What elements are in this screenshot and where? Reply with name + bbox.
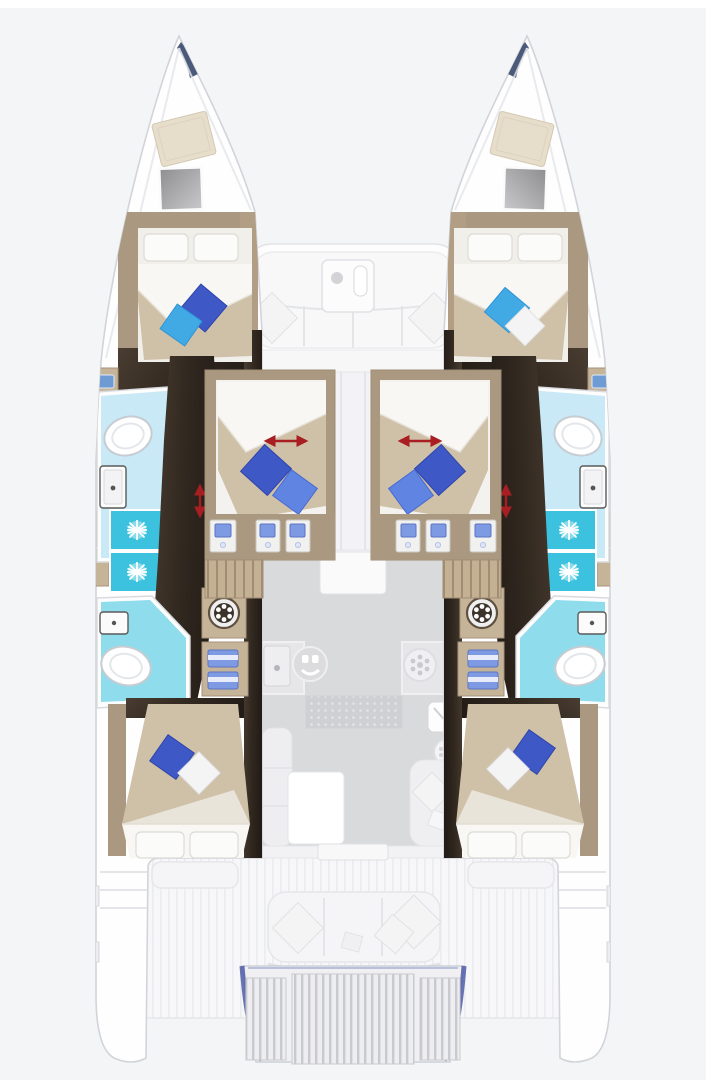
aft-bench bbox=[268, 892, 441, 975]
grating-panel bbox=[420, 978, 460, 1060]
forward-cockpit bbox=[244, 244, 462, 356]
grating-panel bbox=[292, 974, 414, 1064]
top-white-strip bbox=[0, 0, 706, 8]
center-column bbox=[333, 372, 373, 550]
galley-hob bbox=[293, 647, 327, 681]
side-bench-starboard bbox=[468, 862, 554, 888]
foredeck-band bbox=[246, 350, 460, 372]
grating-panel bbox=[246, 978, 286, 1060]
floorplan-stage bbox=[0, 0, 706, 1080]
catamaran-floorplan bbox=[0, 8, 706, 1080]
swim-platform bbox=[242, 966, 464, 1064]
cockpit-table bbox=[322, 260, 374, 312]
galley-burner bbox=[404, 649, 436, 681]
galley-floor-mat bbox=[306, 696, 402, 728]
dining-table bbox=[288, 772, 344, 844]
galley-sink bbox=[264, 646, 290, 686]
salon-door bbox=[318, 844, 388, 860]
side-bench-port bbox=[152, 862, 238, 888]
